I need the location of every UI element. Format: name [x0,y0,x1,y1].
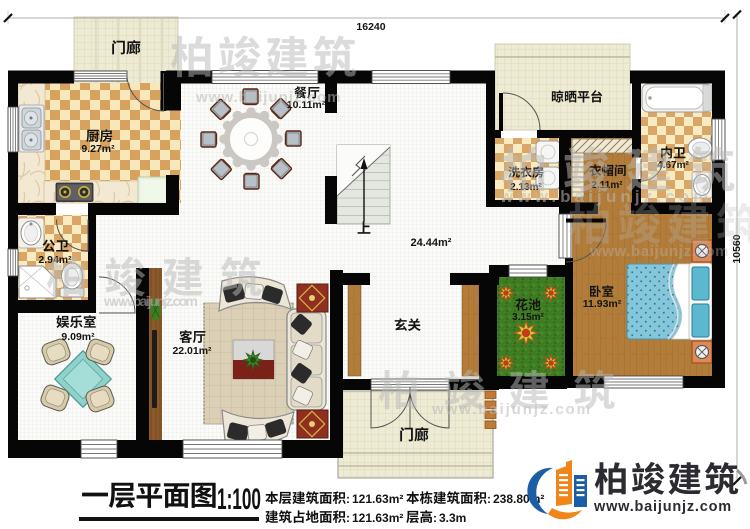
svg-text:3.15m²: 3.15m² [512,312,544,323]
svg-text:3.3m: 3.3m [439,511,466,525]
svg-text:24.44m²: 24.44m² [411,237,452,249]
svg-text:11.93m²: 11.93m² [583,298,622,310]
svg-text::: : [346,492,350,506]
svg-text:121.63m²: 121.63m² [352,492,403,506]
svg-text:www.baijunjz.com: www.baijunjz.com [195,89,341,106]
svg-text:121.63m²: 121.63m² [352,511,403,525]
svg-text:www.baijunjz.com: www.baijunjz.com [589,243,729,260]
svg-text:16240: 16240 [356,21,385,33]
svg-text:www.baijunjz.com: www.baijunjz.com [593,499,732,515]
svg-text:www.baijunjz.com: www.baijunjz.com [103,293,197,309]
svg-text::: : [433,511,437,525]
svg-text:www.baijunjz.com: www.baijunjz.com [431,401,592,418]
svg-text:www.baijunjz.com: www.baijunjz.com [499,187,712,206]
svg-text::: : [346,511,350,525]
svg-text::: : [487,492,491,506]
svg-text:22.01m²: 22.01m² [172,345,212,357]
svg-text:9.27m²: 9.27m² [81,143,115,155]
svg-text:9.09m²: 9.09m² [61,331,95,343]
svg-text:1:100: 1:100 [217,483,261,516]
